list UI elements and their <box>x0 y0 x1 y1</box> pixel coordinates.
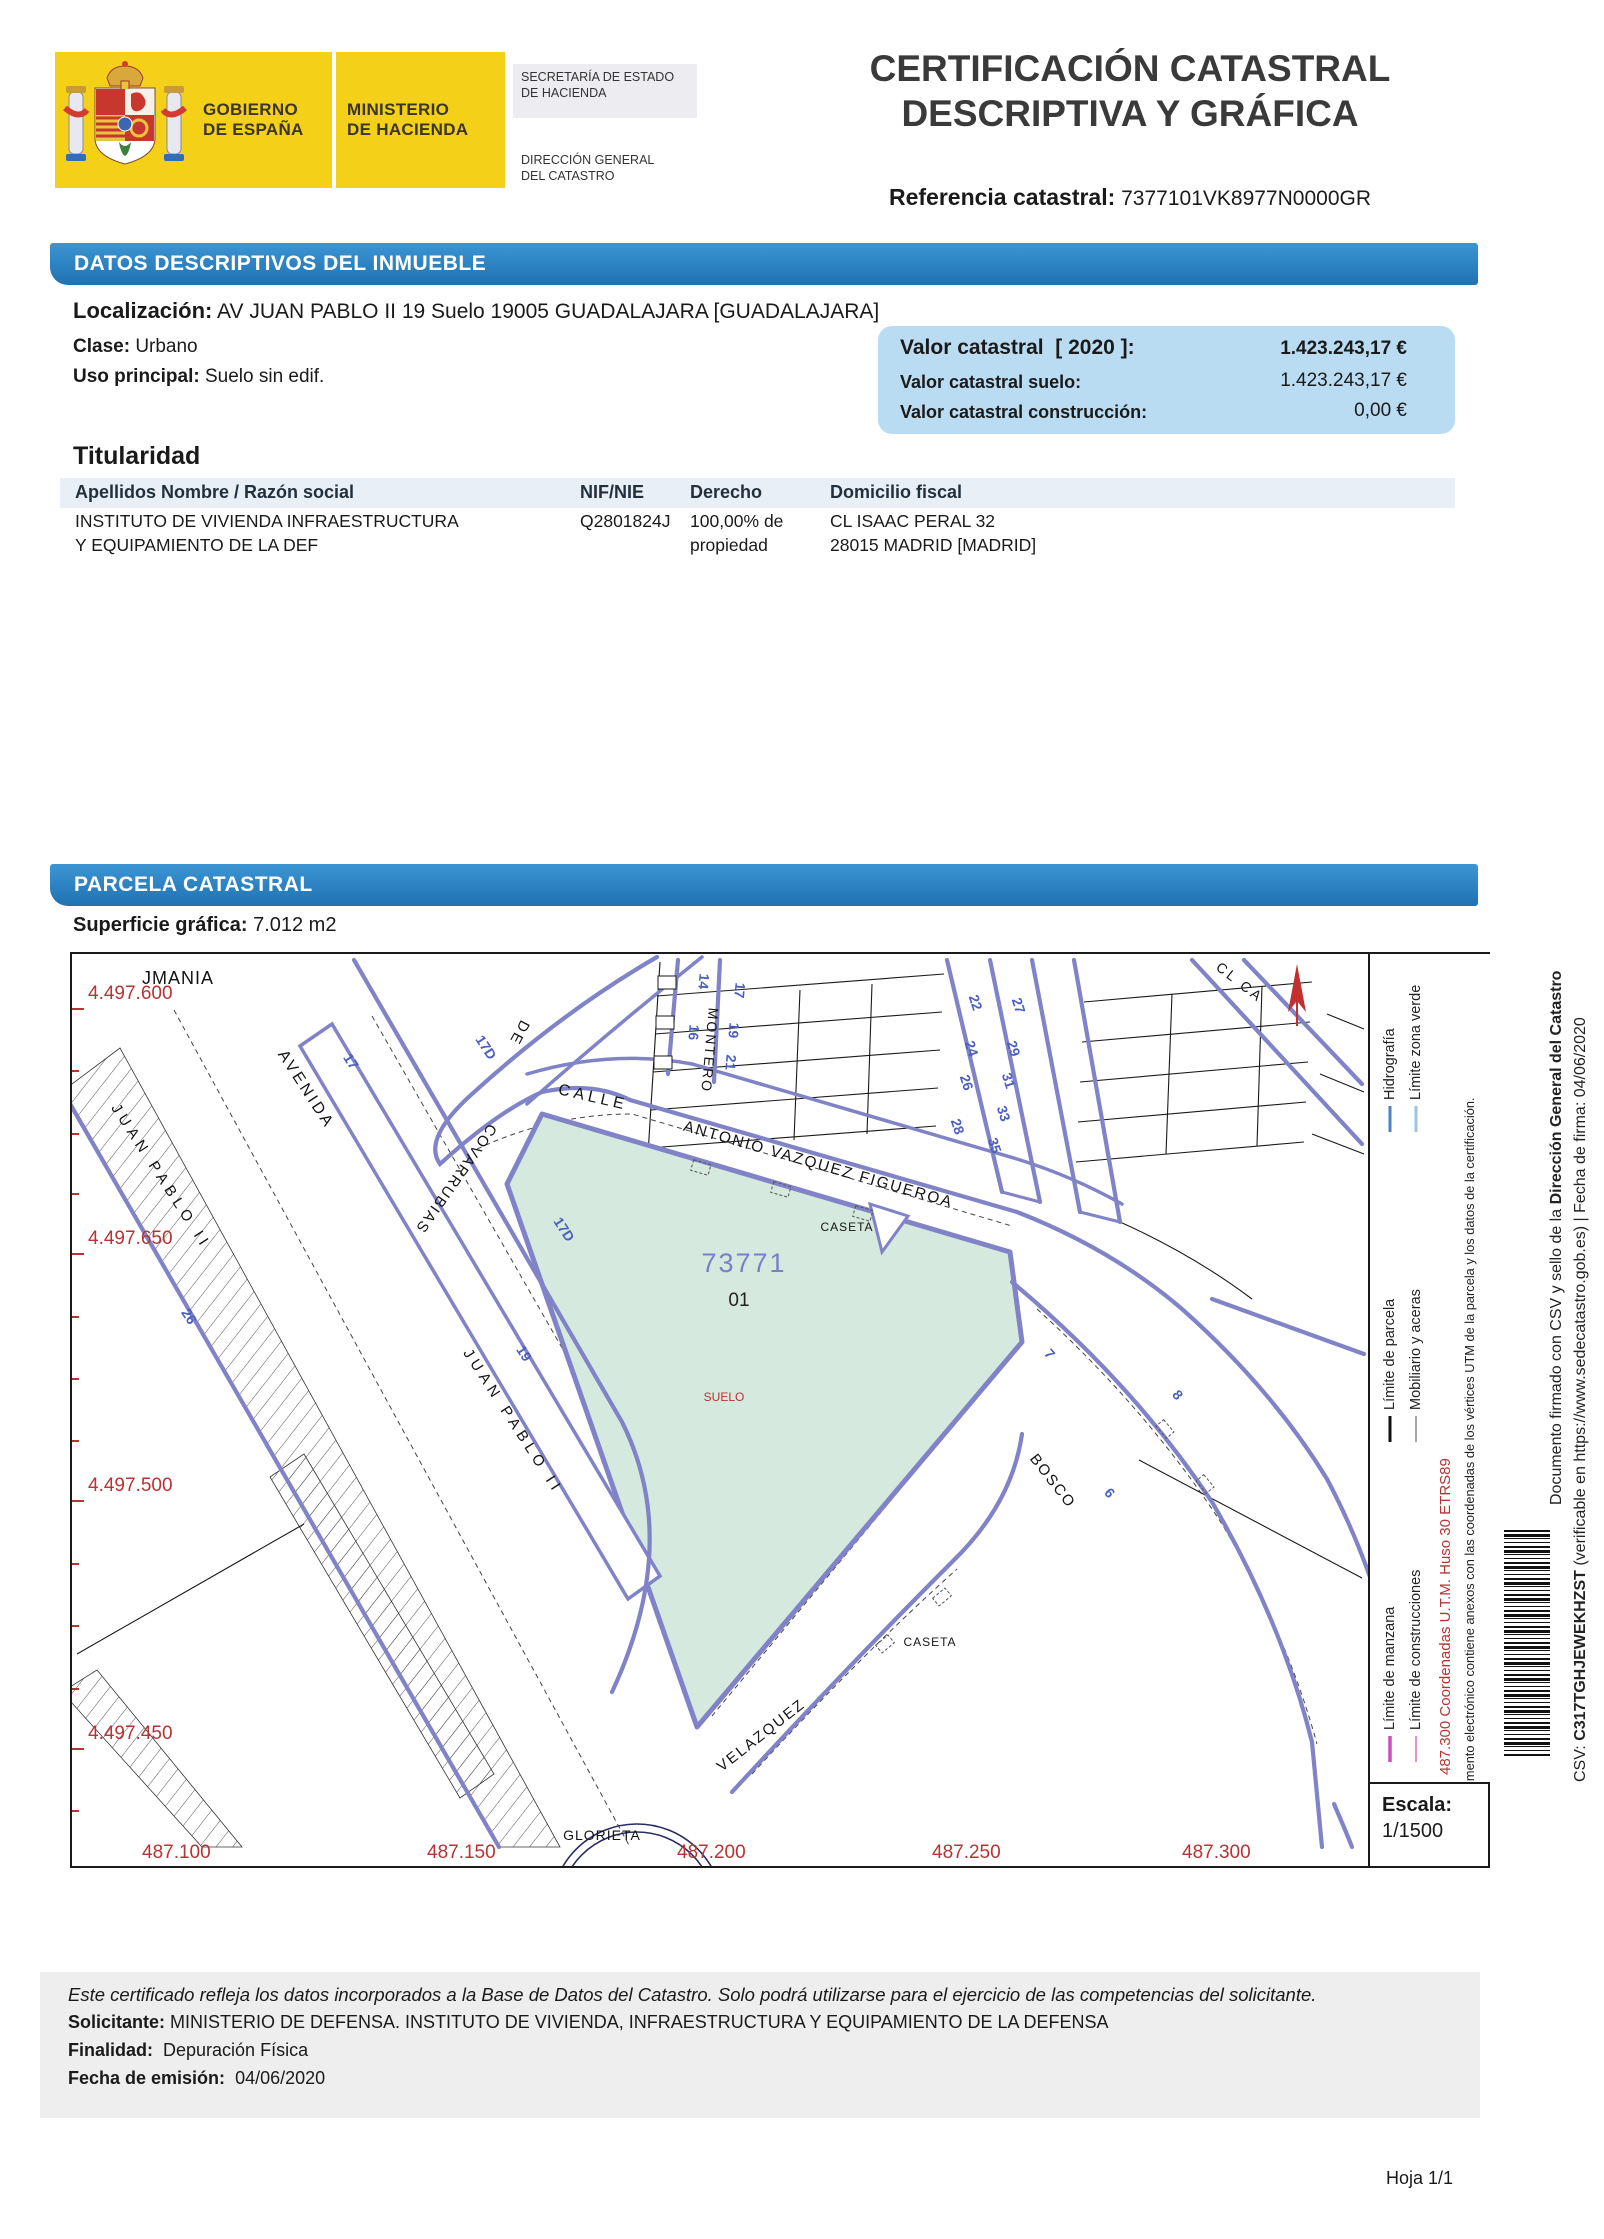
legend-limite-manzana: Límite de manzana <box>1382 1607 1398 1762</box>
num-16: 16 <box>685 1024 702 1041</box>
superficie-line: Superficie gráfica: 7.012 m2 <box>73 914 336 937</box>
legend-limite-construcciones: Límite de construcciones <box>1408 1570 1424 1762</box>
num-24: 24 <box>962 1039 982 1059</box>
valor-construccion-value: 0,00 € <box>1354 400 1407 422</box>
num-6: 6 <box>1101 1485 1118 1501</box>
num-14: 14 <box>695 973 712 990</box>
street-jmania: JMANIA <box>142 968 214 988</box>
direccion-general-label: DIRECCIÓN GENERALDEL CATASTRO <box>521 152 701 185</box>
subparcel-label: 01 <box>728 1290 749 1311</box>
valor-suelo-value: 1.423.243,17 € <box>1280 370 1407 392</box>
coord-y-3: 4.497.500 <box>88 1475 173 1496</box>
coord-y-4: 4.497.450 <box>88 1723 173 1744</box>
titular-derecho: 100,00% de propiedad <box>690 510 783 557</box>
utm-reference-note: 487.300 Coordenadas U.T.M. Huso 30 ETRS8… <box>1437 1355 1457 1775</box>
signature-line-1: Documento firmado con CSV y sello de la … <box>1548 600 1568 1505</box>
num-8: 8 <box>1169 1387 1186 1403</box>
uso-principal-line: Uso principal: Suelo sin edif. <box>73 366 324 388</box>
certificate-page: GOBIERNODE ESPAÑA MINISTERIODE HACIENDA … <box>0 0 1604 2239</box>
coord-x-4: 487.250 <box>932 1842 1001 1863</box>
legend-swatch-construcciones <box>1413 1736 1419 1762</box>
caseta-label-1: CASETA <box>820 1220 873 1234</box>
scale-box: Escala: 1/1500 <box>1368 1782 1488 1866</box>
gobierno-label: GOBIERNODE ESPAÑA <box>203 100 333 140</box>
localizacion-line: Localización: AV JUAN PABLO II 19 Suelo … <box>73 298 879 324</box>
num-28: 28 <box>948 1117 968 1137</box>
cadastral-map-svg: 4.497.600 4.497.650 4.497.500 4.497.450 … <box>72 954 1488 1866</box>
footer-solicitante: Solicitante: MINISTERIO DE DEFENSA. INST… <box>68 2012 1109 2033</box>
num-17c: 17 <box>731 982 748 999</box>
legend-swatch-mobiliario <box>1413 1416 1419 1442</box>
titularidad-table-row: INSTITUTO DE VIVIENDA INFRAESTRUCTURA Y … <box>60 510 1455 570</box>
government-logo-block: GOBIERNODE ESPAÑA MINISTERIODE HACIENDA <box>55 52 505 188</box>
num-22: 22 <box>966 993 986 1013</box>
legend-zona-verde: Límite zona verde <box>1408 985 1424 1132</box>
coord-x-5: 487.300 <box>1182 1842 1251 1863</box>
ministerio-label: MINISTERIODE HACIENDA <box>347 100 497 140</box>
north-arrow-icon <box>1288 964 1306 1026</box>
street-calle: CALLE <box>557 1081 630 1113</box>
referencia-catastral: Referencia catastral: 7377101VK8977N0000… <box>790 184 1470 211</box>
footer-finalidad: Finalidad: Depuración Física <box>68 2040 308 2061</box>
parcel-number-label: 73771 <box>701 1248 786 1278</box>
coord-y-2: 4.497.650 <box>88 1228 173 1249</box>
legend-swatch-zona-verde <box>1413 1106 1419 1132</box>
street-glorieta: GLORIETA <box>563 1827 641 1843</box>
titular-domicilio: CL ISAAC PERAL 32 28015 MADRID [MADRID] <box>830 510 1036 557</box>
coord-x-3: 487.200 <box>677 1842 746 1863</box>
coord-x-1: 487.100 <box>142 1842 211 1863</box>
footer-box: Este certificado refleja los datos incor… <box>40 1972 1480 2118</box>
secretaria-label: SECRETARÍA DE ESTADODE HACIENDA <box>513 64 697 118</box>
signature-barcode <box>1504 1530 1550 1758</box>
num-17d-a: 17D <box>472 1032 499 1062</box>
coord-x-2: 487.150 <box>427 1842 496 1863</box>
num-7: 7 <box>1041 1346 1058 1362</box>
signature-line-2: CSV: C317TGHJEWEKHZST (verificable en ht… <box>1572 607 1592 1782</box>
titular-nif: Q2801824J <box>580 510 671 534</box>
logo-divider <box>332 52 336 188</box>
num-19b: 19 <box>725 1022 742 1039</box>
legend-hidrografia: Hidrografía <box>1382 1028 1398 1132</box>
num-27: 27 <box>1009 996 1029 1016</box>
suelo-label: SUELO <box>704 1390 745 1404</box>
num-33: 33 <box>994 1104 1014 1124</box>
num-21: 21 <box>722 1054 739 1071</box>
num-26b: 26 <box>957 1073 977 1093</box>
valor-catastral-box: Valor catastral [ 2020 ]: 1.423.243,17 €… <box>878 326 1455 434</box>
datos-banner: DATOS DESCRIPTIVOS DEL INMUEBLE <box>50 243 1478 285</box>
anexos-note: Este documento electrónico contiene anex… <box>1462 958 1480 1838</box>
footer-disclaimer: Este certificado refleja los datos incor… <box>68 1984 1316 2006</box>
valor-catastral-value: 1.423.243,17 € <box>1280 338 1407 360</box>
street-montero: MONTERO <box>698 1007 721 1094</box>
legend-limite-parcela: Límite de parcela <box>1382 1299 1398 1442</box>
document-title: CERTIFICACIÓN CATASTRAL DESCRIPTIVA Y GR… <box>800 46 1460 136</box>
legend-swatch-manzana <box>1387 1736 1393 1762</box>
caseta-label-2: CASETA <box>903 1635 956 1649</box>
titular-nombre: INSTITUTO DE VIVIENDA INFRAESTRUCTURA Y … <box>75 510 459 557</box>
legend-swatch-hidrografia <box>1387 1106 1393 1132</box>
page-number: Hoja 1/1 <box>1386 2168 1453 2189</box>
num-29: 29 <box>1004 1039 1024 1059</box>
titularidad-heading: Titularidad <box>73 442 200 471</box>
parcela-banner: PARCELA CATASTRAL <box>50 864 1478 906</box>
map-legend: Límite de manzana Límite de parcela Hidr… <box>1380 982 1434 1772</box>
cadastral-map: 4.497.600 4.497.650 4.497.500 4.497.450 … <box>70 952 1490 1868</box>
street-bosco: BOSCO <box>1026 1451 1079 1512</box>
spain-coat-of-arms-icon <box>61 58 189 182</box>
num-35: 35 <box>985 1136 1005 1156</box>
legend-swatch-parcela <box>1387 1416 1393 1442</box>
footer-fecha-emision: Fecha de emisión: 04/06/2020 <box>68 2068 325 2089</box>
street-cl-ca: CL CA <box>1213 959 1267 1006</box>
titularidad-table-header: Apellidos Nombre / Razón social NIF/NIE … <box>60 478 1455 508</box>
legend-mobiliario: Mobiliario y aceras <box>1408 1289 1424 1442</box>
clase-line: Clase: Urbano <box>73 336 198 358</box>
